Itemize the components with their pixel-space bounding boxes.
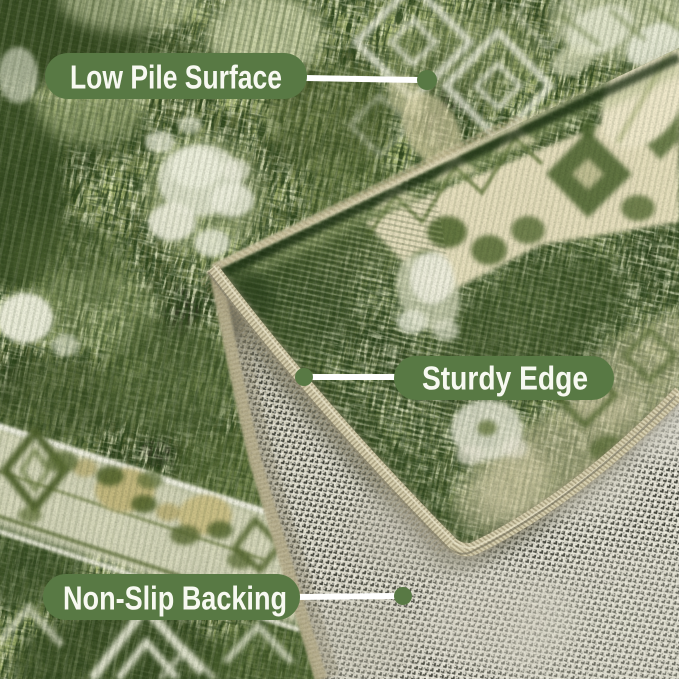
svg-text:Non-Slip Backing: Non-Slip Backing bbox=[63, 580, 287, 617]
svg-text:Low Pile Surface: Low Pile Surface bbox=[70, 59, 282, 96]
svg-text:Sturdy Edge: Sturdy Edge bbox=[422, 360, 588, 397]
